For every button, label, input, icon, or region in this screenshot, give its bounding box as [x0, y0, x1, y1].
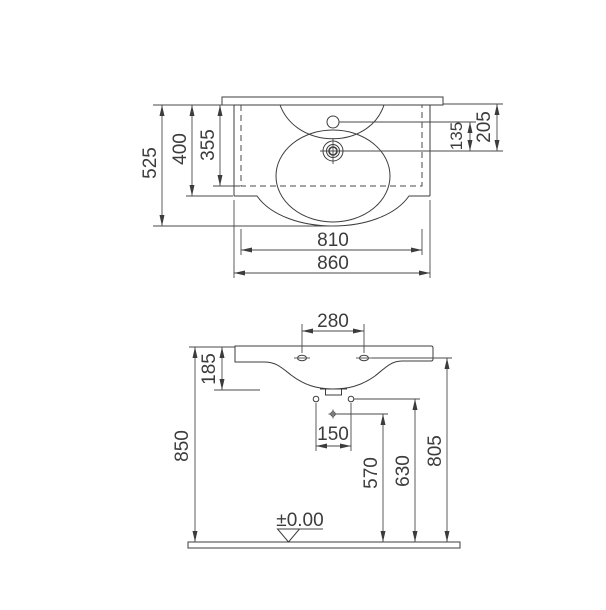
mount-hole-left [313, 396, 319, 402]
dim-810-label: 810 [317, 230, 349, 251]
dim-depth-inner: 355 [198, 105, 220, 186]
dim-width-inner: 810 [241, 230, 422, 251]
fixing-slot-left [294, 355, 310, 361]
dim-width-total: 860 [234, 253, 430, 274]
dim-205-label: 205 [474, 111, 495, 143]
dim-525-label: 525 [140, 147, 161, 179]
floor-level-marker: ±0.00 [276, 510, 323, 542]
dim-150-label: 150 [317, 424, 349, 445]
floor-level-label: ±0.00 [276, 510, 323, 531]
plan-view: 525 400 355 135 205 810 [140, 97, 503, 278]
dim-860-label: 860 [317, 253, 349, 274]
dim-wall-to-drain: 205 [474, 104, 497, 151]
dim-185-label: 185 [199, 353, 220, 385]
dim-135-label: 135 [447, 122, 466, 150]
dim-basin-front-height: 185 [199, 347, 222, 390]
technical-drawing: 525 400 355 135 205 810 [0, 0, 606, 610]
dim-fixing-hole-height: 805 [425, 358, 447, 542]
dim-805-label: 805 [425, 435, 446, 467]
basin-front-outline [235, 346, 433, 389]
mid-hole [329, 410, 389, 419]
wall-section-hatch [222, 97, 443, 105]
dim-280-label: 280 [317, 311, 349, 332]
dim-lower-hole-spacing: 150 [316, 424, 351, 446]
front-view: 280 185 850 150 570 630 805 [172, 311, 460, 548]
drain-trap [320, 389, 347, 395]
basin-plan-outline [234, 105, 430, 226]
dim-depth-total: 525 [140, 105, 162, 226]
dim-400-label: 400 [170, 133, 191, 165]
hidden-cutout-line [241, 105, 422, 186]
dim-850-label: 850 [172, 430, 193, 462]
dim-depth-body: 400 [170, 105, 192, 196]
dim-taphole-spacing: 280 [302, 311, 364, 332]
dim-tap-to-drain: 135 [447, 122, 470, 151]
dim-mid-hole-height: 570 [361, 414, 383, 542]
dim-630-label: 630 [393, 455, 414, 487]
drawing-canvas: 525 400 355 135 205 810 [0, 0, 606, 610]
fixing-slot-right [356, 355, 452, 361]
mount-hole-right [348, 396, 354, 402]
dim-side-hole-height: 630 [393, 399, 415, 542]
dim-570-label: 570 [361, 457, 382, 489]
dim-total-height: 850 [172, 347, 195, 542]
floor-section-hatch [188, 542, 460, 548]
dim-355-label: 355 [198, 129, 219, 161]
